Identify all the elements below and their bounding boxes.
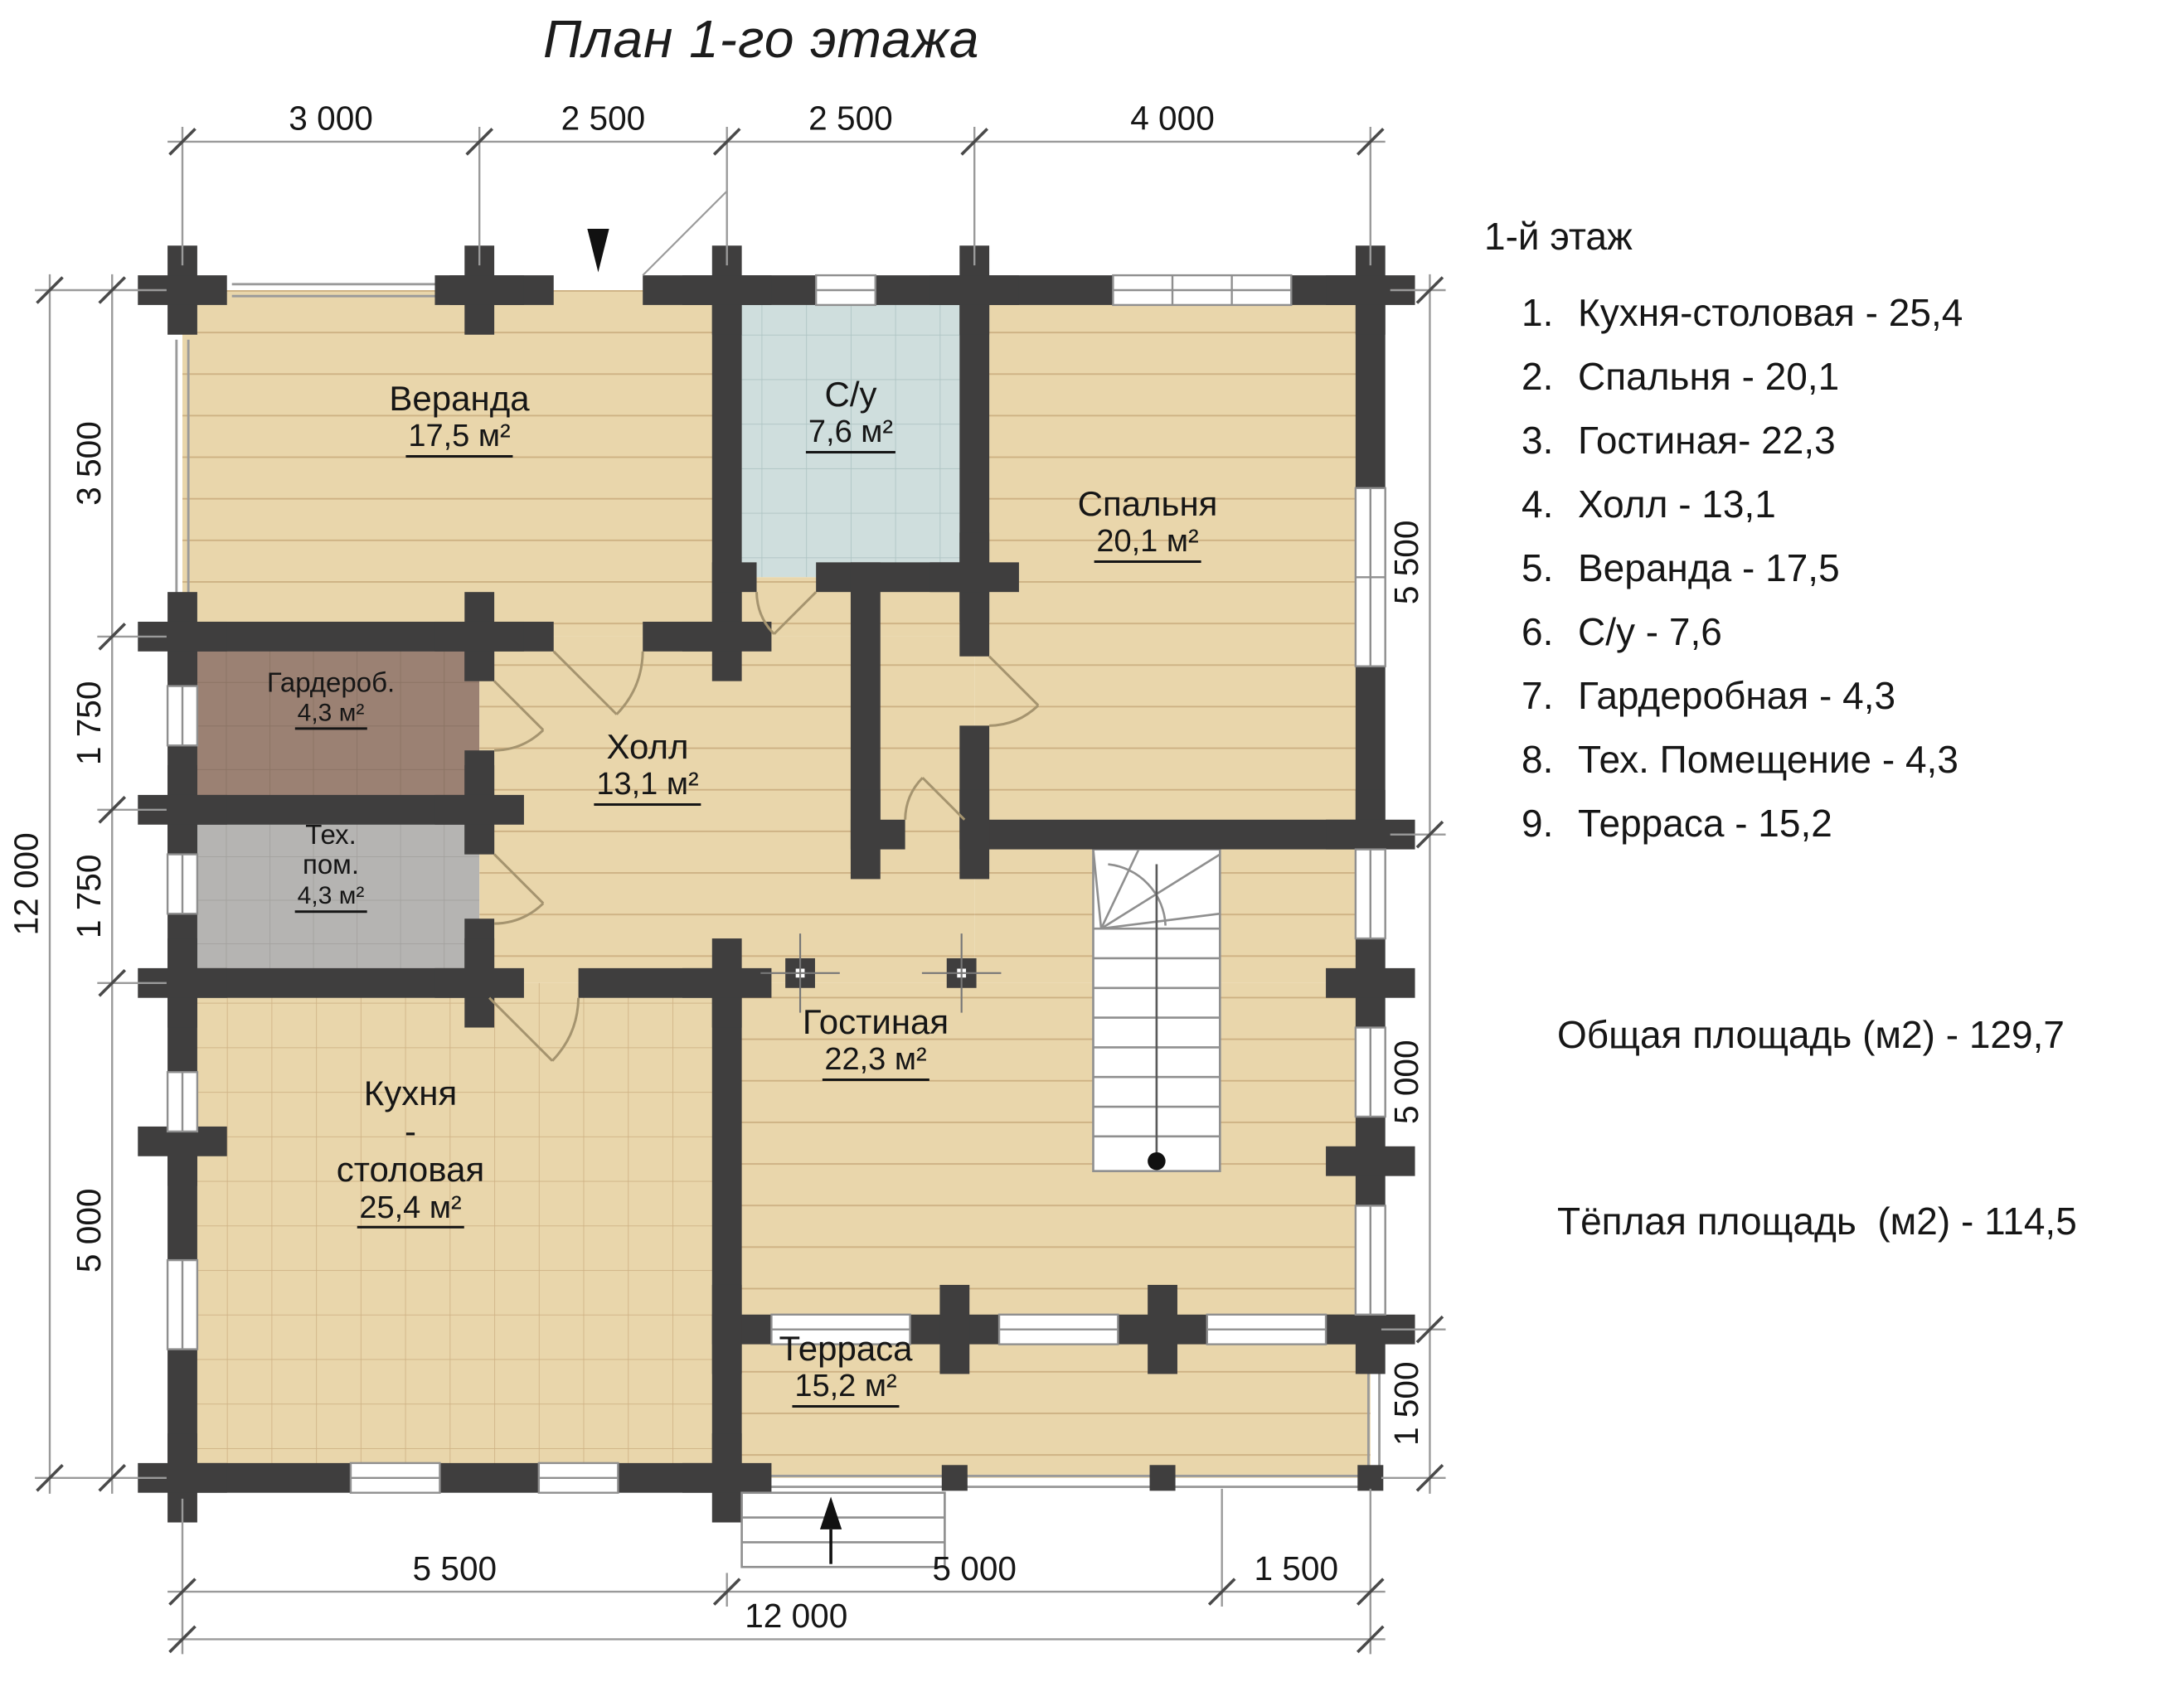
staircase	[1093, 850, 1220, 1171]
room-label-tech: Тех. пом. 4,3 м²	[295, 820, 367, 913]
dim-left-total: 12 000	[7, 832, 46, 935]
dim-left-3: 1 750	[70, 855, 108, 939]
legend-item: 4.Холл - 13,1	[1484, 472, 2172, 536]
stair-start-dot	[1148, 1152, 1165, 1170]
legend-heading: 1-й этаж	[1484, 214, 2172, 259]
legend-totals: Общая площадь (м2) - 129,7 Тёплая площад…	[1484, 880, 2172, 1377]
room-label-veranda: Веранда 17,5 м²	[389, 380, 529, 458]
dim-right-3: 1 500	[1387, 1361, 1425, 1446]
room-label-bedroom: Спальня 20,1 м²	[1078, 485, 1218, 563]
room-hall-floor	[479, 637, 974, 983]
legend-item: 7.Гардеробная - 4,3	[1484, 663, 2172, 727]
room-label-bathroom: С/у 7,6 м²	[806, 376, 895, 453]
warm-area: Тёплая площадь (м2) - 114,5	[1557, 1190, 2172, 1253]
dim-top-2: 2 500	[561, 99, 646, 138]
dim-right-2: 5 000	[1387, 1040, 1425, 1124]
room-veranda-floor	[182, 290, 727, 637]
entrance-arrow-top-icon	[587, 229, 609, 273]
legend-item: 5.Веранда - 17,5	[1484, 536, 2172, 599]
dim-top-1: 3 000	[289, 99, 373, 138]
dim-top-4: 4 000	[1130, 99, 1215, 138]
legend-item: 8.Тех. Помещение - 4,3	[1484, 727, 2172, 791]
dim-left-1: 3 500	[70, 421, 108, 506]
legend-item: 1.Кухня-столовая - 25,4	[1484, 280, 2172, 344]
legend-item: 6.С/у - 7,6	[1484, 599, 2172, 663]
dim-right-1: 5 500	[1387, 521, 1425, 605]
room-label-kitchen: Кухня - столовая 25,4 м²	[337, 1074, 484, 1229]
page-title: План 1-го этажа	[543, 8, 979, 70]
dim-top-3: 2 500	[808, 99, 893, 138]
legend-list: 1.Кухня-столовая - 25,4 2.Спальня - 20,1…	[1484, 280, 2172, 855]
room-label-terrace: Терраса 15,2 м²	[779, 1330, 912, 1408]
legend-item: 2.Спальня - 20,1	[1484, 344, 2172, 408]
total-area: Общая площадь (м2) - 129,7	[1557, 1004, 2172, 1066]
dim-bottom-2: 5 000	[932, 1549, 1017, 1587]
dim-bottom-1: 5 500	[413, 1549, 497, 1587]
entry-steps	[742, 1493, 945, 1568]
room-label-wardrobe: Гардероб. 4,3 м²	[267, 667, 395, 730]
dim-bottom-3: 1 500	[1254, 1549, 1338, 1587]
legend-item: 9.Терраса - 15,2	[1484, 791, 2172, 855]
dim-bottom-total: 12 000	[745, 1597, 847, 1635]
dim-left-2: 1 750	[70, 681, 108, 766]
dim-left-4: 5 000	[70, 1189, 108, 1273]
room-kitchen-floor	[182, 983, 727, 1478]
room-label-hall: Холл 13,1 м²	[594, 728, 701, 806]
legend-item: 3.Гостиная- 22,3	[1484, 408, 2172, 472]
legend: 1-й этаж 1.Кухня-столовая - 25,4 2.Спаль…	[1484, 214, 2172, 1377]
room-label-living: Гостиная 22,3 м²	[803, 1003, 949, 1081]
